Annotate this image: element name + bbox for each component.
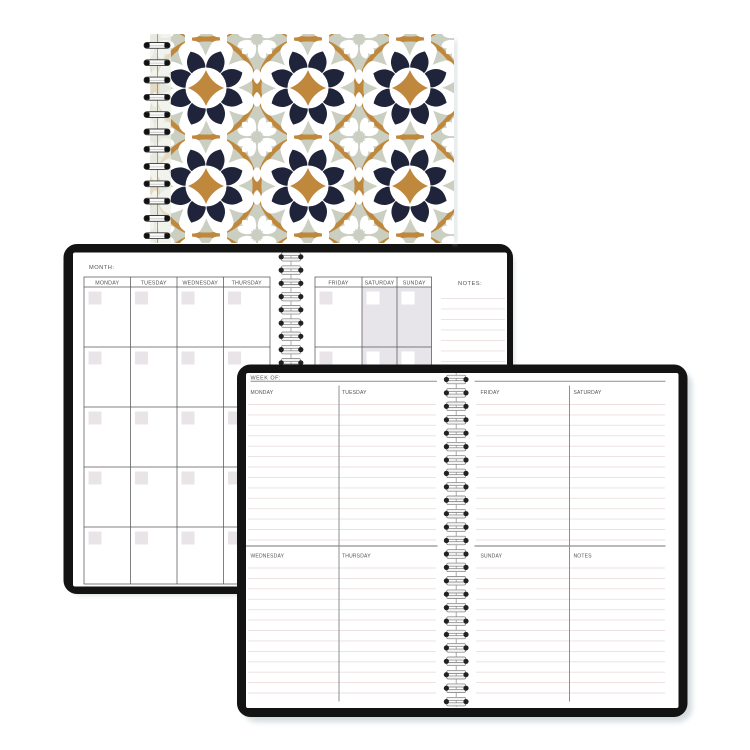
svg-text:FRIDAY: FRIDAY [328, 281, 348, 287]
svg-text:NOTES:: NOTES: [458, 281, 482, 287]
svg-text:FRIDAY: FRIDAY [481, 390, 501, 396]
svg-text:SATURDAY: SATURDAY [365, 281, 395, 287]
svg-text:MONDAY: MONDAY [95, 281, 119, 287]
svg-text:MONDAY: MONDAY [251, 390, 274, 396]
svg-text:SUNDAY: SUNDAY [481, 554, 503, 560]
svg-text:TUESDAY: TUESDAY [342, 390, 367, 396]
svg-text:THURSDAY: THURSDAY [232, 281, 263, 287]
svg-text:NOTES: NOTES [574, 554, 593, 560]
svg-text:WEDNESDAY: WEDNESDAY [251, 554, 285, 560]
svg-text:SUNDAY: SUNDAY [403, 281, 426, 287]
svg-text:TUESDAY: TUESDAY [141, 281, 167, 287]
svg-text:SATURDAY: SATURDAY [574, 390, 603, 396]
svg-text:MONTH:: MONTH: [89, 265, 114, 271]
svg-text:THURSDAY: THURSDAY [342, 554, 371, 560]
svg-text:WEDNESDAY: WEDNESDAY [182, 281, 218, 287]
svg-text:WEEK OF:: WEEK OF: [251, 376, 281, 382]
